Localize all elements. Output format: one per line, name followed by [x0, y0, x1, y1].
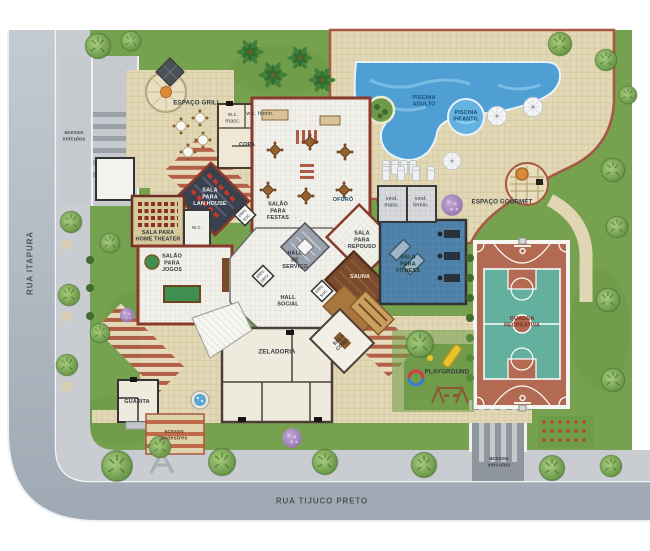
tree-icon: [100, 233, 120, 253]
pool-kids-shape: [448, 99, 484, 135]
tree-icon: [121, 31, 141, 51]
wc-room: [184, 210, 210, 246]
tree-icon: [85, 33, 110, 58]
tree-icon: [90, 323, 110, 343]
tree-icon: [539, 455, 564, 480]
umbrella-icon: [523, 97, 542, 116]
pool-table-icon: [164, 286, 200, 302]
sport-court: [475, 238, 568, 411]
fountain: [191, 391, 209, 409]
card-table-icon: [145, 255, 159, 269]
utility-room: [96, 158, 134, 200]
tree-icon: [149, 436, 171, 458]
tree-icon: [595, 49, 617, 71]
site-plan-graphic: [0, 0, 650, 551]
home-theater-room: [132, 196, 184, 246]
pool-planter-island: [368, 97, 394, 123]
tree-icon: [411, 452, 436, 477]
spring-toy-icon: [427, 355, 433, 361]
tree-icon: [606, 216, 628, 238]
lilac-shrub-icon: [120, 308, 134, 322]
tree-icon: [60, 211, 82, 233]
tree-icon: [56, 354, 78, 376]
tree-icon: [312, 449, 337, 474]
grill-icon: [536, 179, 543, 185]
changing-rooms: [378, 186, 436, 222]
grill-dome-icon: [161, 87, 172, 98]
tree-icon: [601, 158, 624, 181]
sofa-icon: [320, 116, 340, 125]
tree-icon: [58, 284, 80, 306]
pizza-oven-icon: [516, 168, 528, 180]
lilac-shrub-icon: [441, 194, 463, 216]
umbrella-icon: [443, 152, 461, 170]
fitness-room: [380, 220, 466, 304]
tree-icon: [600, 455, 622, 477]
lilac-shrub-icon: [282, 428, 302, 448]
sofa-icon: [262, 110, 288, 120]
tree-icon: [601, 368, 624, 391]
tree-icon: [209, 449, 236, 476]
tree-icon: [102, 451, 133, 482]
site-plan: RUA ITAPURA RUA TIJUCO PRETO acesso veíc…: [0, 0, 650, 551]
tree-icon: [596, 288, 619, 311]
flower-bed: [538, 416, 594, 448]
weight-bench-icons: [444, 230, 460, 282]
tree-icon: [407, 331, 434, 358]
tree-icon: [548, 32, 571, 55]
gourmet-area: [506, 163, 548, 205]
umbrella-icon: [487, 106, 506, 125]
tree-icon: [619, 86, 637, 104]
cabinet-icon: [222, 258, 229, 292]
